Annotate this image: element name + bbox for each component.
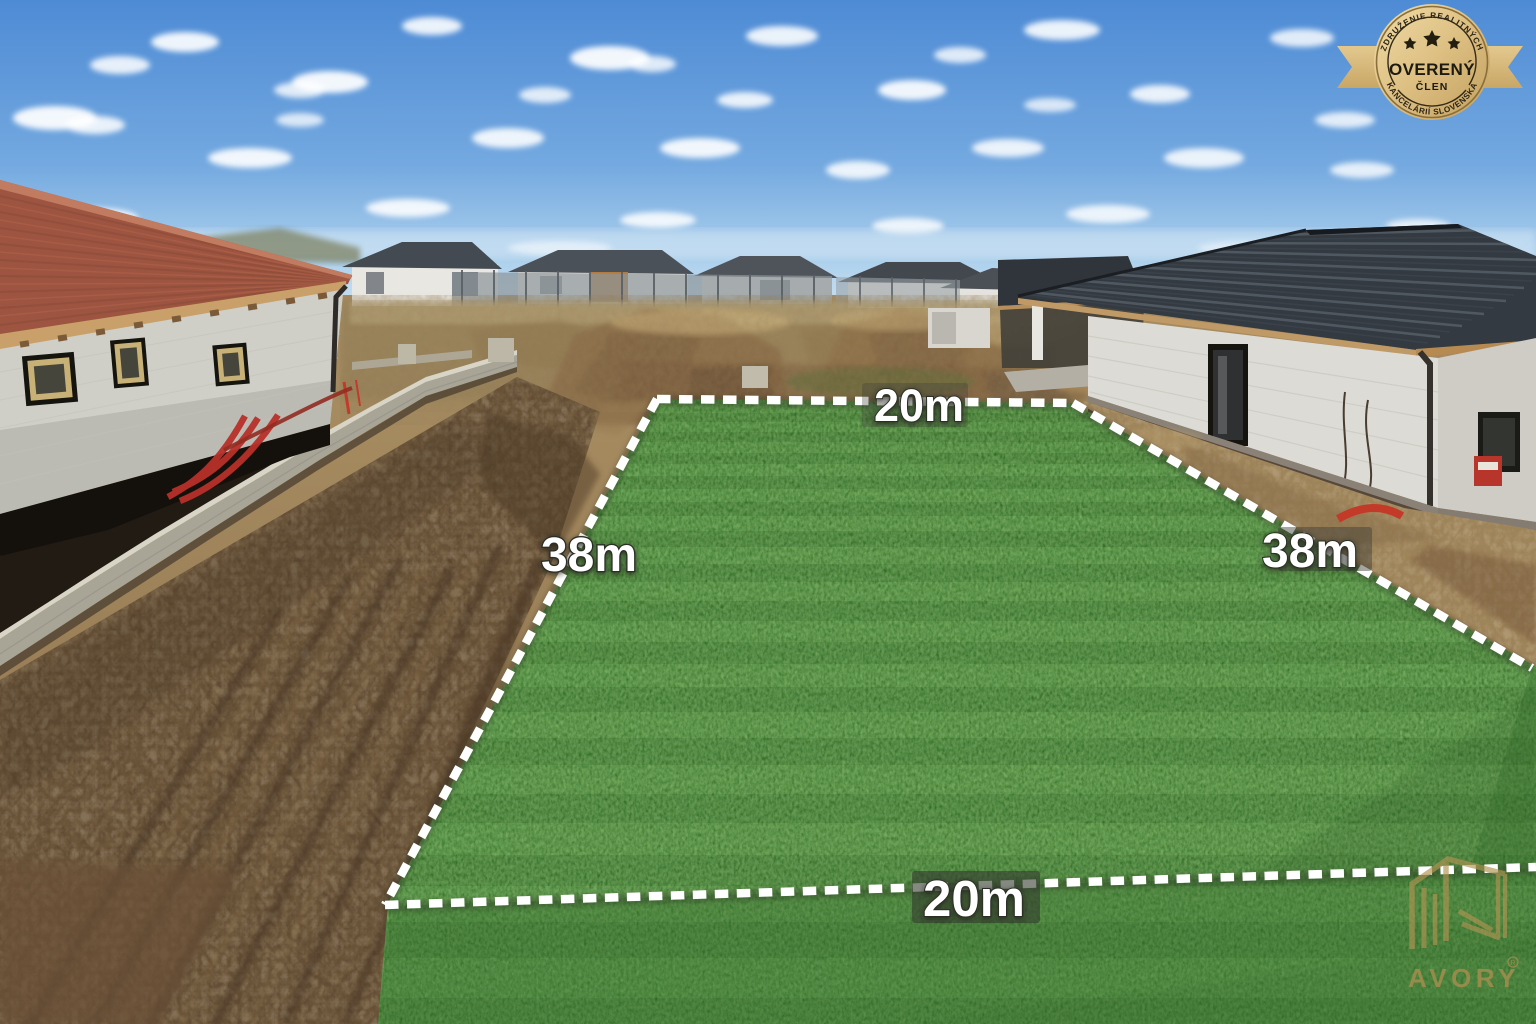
svg-text:R: R (1510, 960, 1515, 967)
svg-text:AVORY: AVORY (1408, 963, 1520, 993)
svg-text:20m: 20m (923, 870, 1025, 927)
svg-text:OVERENÝ: OVERENÝ (1389, 60, 1475, 79)
svg-text:38m: 38m (541, 529, 637, 582)
svg-text:20m: 20m (874, 380, 964, 431)
svg-text:ČLEN: ČLEN (1416, 80, 1449, 93)
svg-text:38m: 38m (1262, 525, 1358, 578)
